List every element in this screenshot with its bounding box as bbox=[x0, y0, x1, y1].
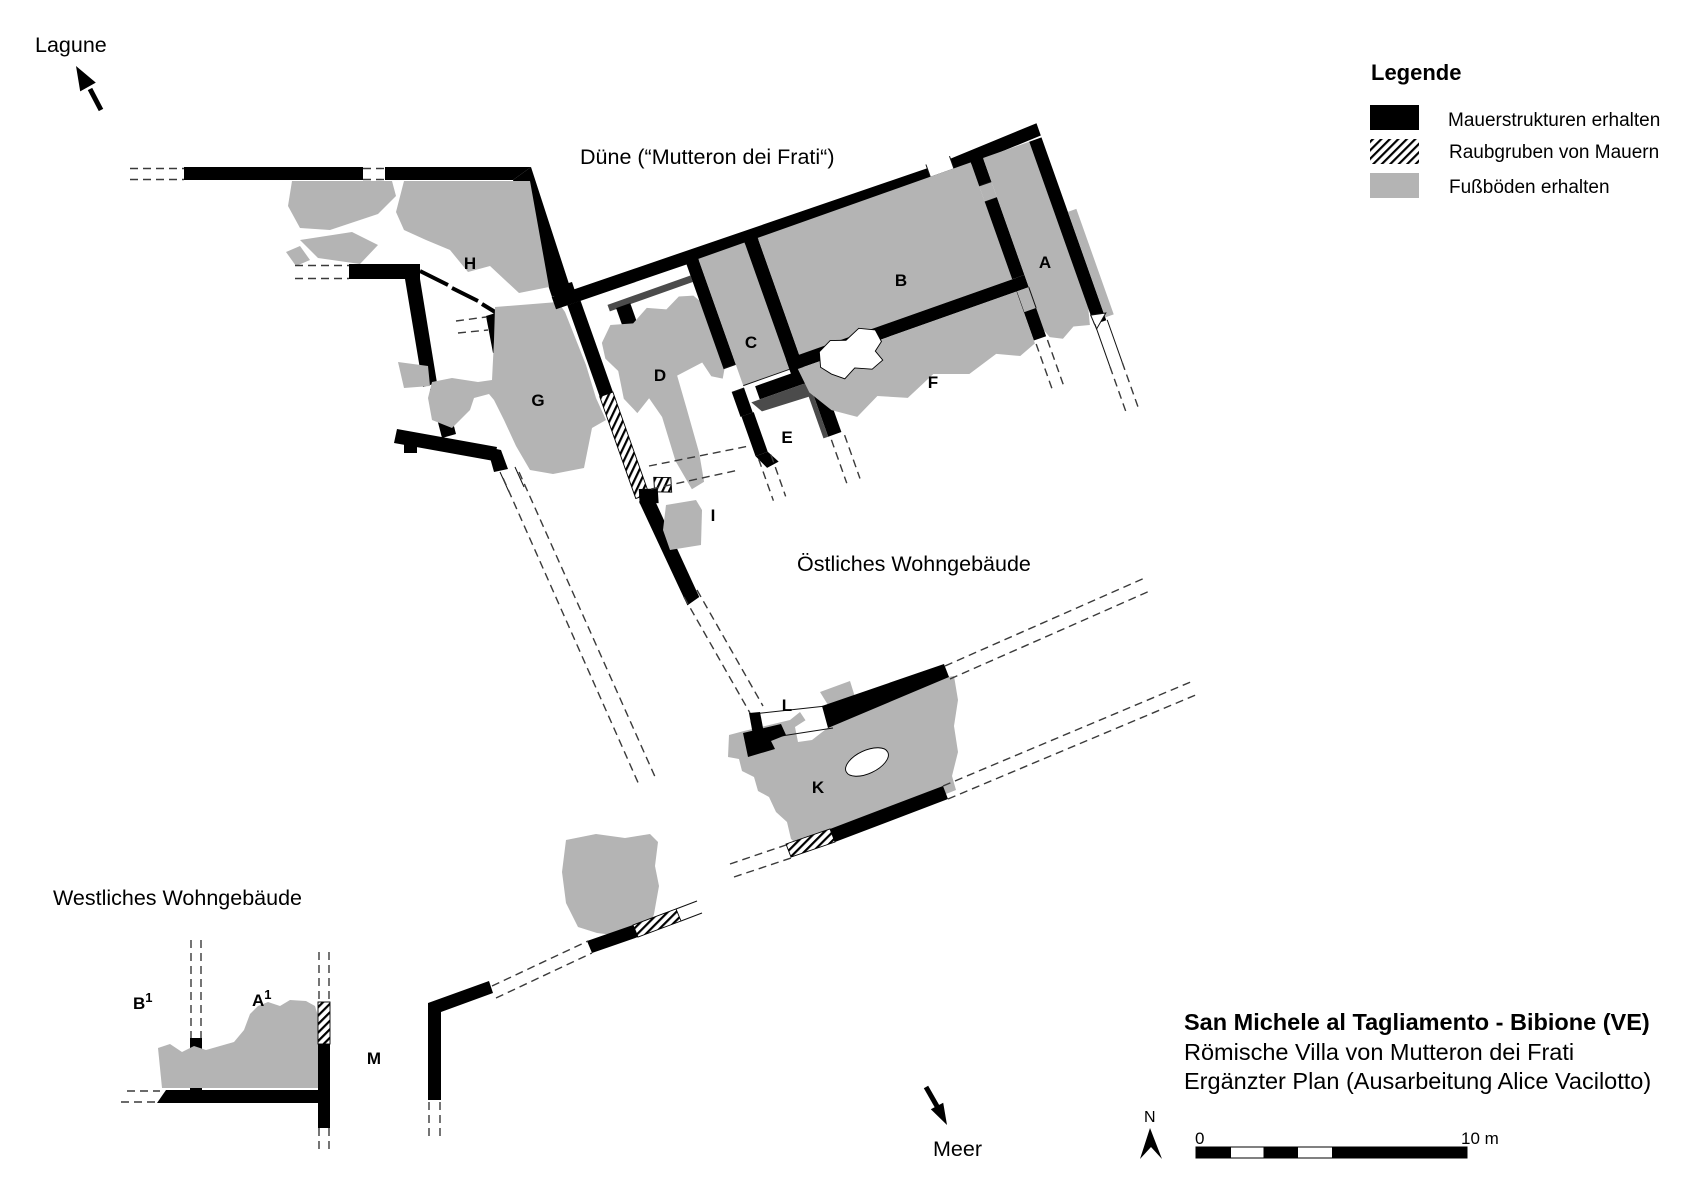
svg-text:N: N bbox=[1144, 1109, 1156, 1126]
svg-text:H: H bbox=[464, 254, 476, 273]
svg-text:D: D bbox=[654, 366, 666, 385]
svg-text:Westliches Wohngebäude: Westliches Wohngebäude bbox=[53, 886, 302, 910]
svg-text:Düne (“Mutteron dei Frati“): Düne (“Mutteron dei Frati“) bbox=[580, 145, 835, 169]
svg-text:B: B bbox=[895, 271, 907, 290]
svg-text:Östliches Wohngebäude: Östliches Wohngebäude bbox=[797, 552, 1031, 576]
svg-text:I: I bbox=[711, 506, 716, 525]
svg-text:A: A bbox=[1039, 253, 1051, 272]
svg-text:Raubgruben von Mauern: Raubgruben von Mauern bbox=[1449, 142, 1659, 163]
svg-text:Römische Villa von Mutteron de: Römische Villa von Mutteron dei Frati bbox=[1184, 1039, 1574, 1065]
svg-text:Ergänzter Plan (Ausarbeitung A: Ergänzter Plan (Ausarbeitung Alice Vacil… bbox=[1184, 1068, 1651, 1094]
svg-text:0: 0 bbox=[1195, 1129, 1204, 1148]
svg-text:Lagune: Lagune bbox=[35, 33, 107, 57]
svg-text:E: E bbox=[781, 428, 792, 447]
svg-text:Meer: Meer bbox=[933, 1137, 982, 1161]
svg-text:C: C bbox=[745, 333, 757, 352]
svg-text:10 m: 10 m bbox=[1461, 1129, 1499, 1148]
svg-text:M: M bbox=[367, 1049, 381, 1068]
svg-text:Fußböden erhalten: Fußböden erhalten bbox=[1449, 177, 1610, 198]
svg-text:L: L bbox=[782, 696, 792, 715]
svg-text:San Michele al Tagliamento - B: San Michele al Tagliamento - Bibione (VE… bbox=[1184, 1009, 1650, 1035]
svg-text:Mauerstrukturen erhalten: Mauerstrukturen erhalten bbox=[1448, 110, 1660, 131]
svg-text:G: G bbox=[531, 391, 544, 410]
svg-text:F: F bbox=[928, 373, 938, 392]
svg-text:K: K bbox=[812, 778, 825, 797]
svg-text:Legende: Legende bbox=[1371, 60, 1461, 85]
